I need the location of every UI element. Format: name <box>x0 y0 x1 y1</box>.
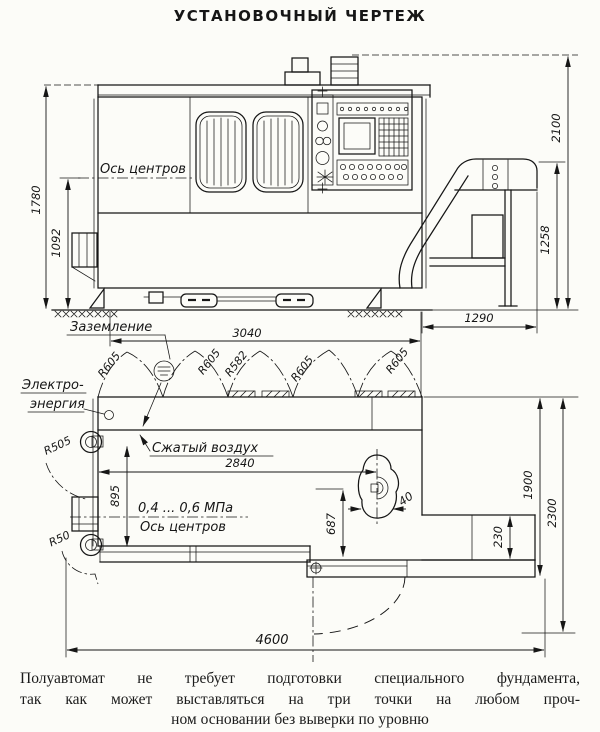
right-extension <box>422 515 535 560</box>
radius-label-2: R605 <box>195 347 223 378</box>
air-callout: Сжатый воздух <box>140 435 273 456</box>
plan-view: R605 R605 R582 R605 R605 Электро- энерги… <box>21 346 578 662</box>
dim-687-label: 687 <box>324 512 338 535</box>
dim-895-label: 895 <box>108 485 122 507</box>
roof-unit-right <box>331 57 358 85</box>
pressure-label: 0,4 ... 0,6 МПа <box>138 501 233 516</box>
ground-line <box>52 310 432 317</box>
warning-symbol <box>317 170 333 184</box>
indicator-lamps <box>340 107 407 110</box>
foot-pedal <box>358 449 398 524</box>
roof-unit-left <box>285 58 320 85</box>
footnote-line-1: Полуавтомат не требует подготовки специа… <box>20 669 580 690</box>
crt-screen <box>339 118 375 154</box>
dim-overall-height: 2100 <box>352 55 578 310</box>
dim-3040-label: 3040 <box>232 326 261 340</box>
front-rail-left <box>98 546 310 562</box>
guard-window-right <box>253 112 303 192</box>
power-label-line2: энергия <box>30 397 85 412</box>
footnote-line-2: так как может выставляться на три точки … <box>20 690 580 711</box>
swing-arc-r505 <box>46 463 86 499</box>
hinge-top <box>81 432 104 453</box>
plan-left-box <box>72 497 98 531</box>
grounding-label: Заземление <box>70 320 152 335</box>
dim-40-label: 40 <box>396 489 416 509</box>
dim-1258-label: 1258 <box>538 225 552 254</box>
dim-2840-label: 2840 <box>225 456 254 470</box>
front-rail-right <box>307 560 535 577</box>
dim-4600-label: 4600 <box>255 633 288 648</box>
machine-body <box>94 97 426 288</box>
dim-chute-height: 1258 <box>538 162 565 309</box>
dim-230-label: 230 <box>491 526 505 548</box>
dim-2300-label: 2300 <box>545 498 559 527</box>
dim-overall-length: 4600 <box>66 558 545 657</box>
radius-label-3: R582 <box>222 349 250 380</box>
footnote-line-3: ном основании без выверки по уровню <box>20 710 580 731</box>
dim-1900-label: 1900 <box>521 470 535 499</box>
cover-swing-arcs <box>98 350 422 397</box>
power-callout: Электро- энергия <box>21 378 114 420</box>
mounting-tabs <box>228 391 415 397</box>
power-connection-point <box>105 411 114 420</box>
dim-step-depth: 230 <box>491 517 510 559</box>
axis-label-side: Ось центров <box>100 162 186 177</box>
control-panel <box>312 87 412 193</box>
footnote: Полуавтомат не требует подготовки специа… <box>20 669 580 731</box>
drawing-page: УСТАНОВОЧНЫЙ ЧЕРТЕЖ <box>0 0 600 732</box>
radius-label-5: R605 <box>383 346 411 377</box>
guard-window-left <box>196 112 246 192</box>
button-rows <box>337 160 408 185</box>
dim-body-height: 1780 <box>29 85 98 309</box>
radius-label-r505: R505 <box>42 434 73 458</box>
door-swing-arc <box>314 577 405 634</box>
dim-axis-height: 1092 <box>49 178 80 309</box>
dim-1780-label: 1780 <box>29 185 43 214</box>
machine-base <box>90 289 381 308</box>
dim-pedal-offset: 687 <box>316 489 343 557</box>
dim-1092-label: 1092 <box>49 228 63 257</box>
air-label: Сжатый воздух <box>152 441 258 456</box>
dim-door-depth: 2300 <box>522 399 575 634</box>
dim-chute-width: 1290 <box>422 192 537 333</box>
chip-conveyor-chute <box>399 159 537 306</box>
dim-axis-offset: 895 <box>108 447 127 547</box>
axis-label-plan: Ось центров <box>140 520 226 535</box>
dim-2100-label: 2100 <box>549 113 563 142</box>
machine-roof <box>98 85 430 97</box>
power-label-line1: Электро- <box>21 378 84 393</box>
radius-label-r50: R50 <box>47 528 72 549</box>
keypad-grid <box>379 118 408 156</box>
radius-label-4: R605 <box>288 354 316 385</box>
dim-1290-label: 1290 <box>464 311 493 325</box>
grounding-symbol <box>154 361 174 381</box>
installation-drawing: Ось центров <box>0 0 600 732</box>
dim-air-offset: 2840 <box>99 456 376 472</box>
radius-label-1: R605 <box>95 350 123 381</box>
side-bracket <box>72 233 97 281</box>
